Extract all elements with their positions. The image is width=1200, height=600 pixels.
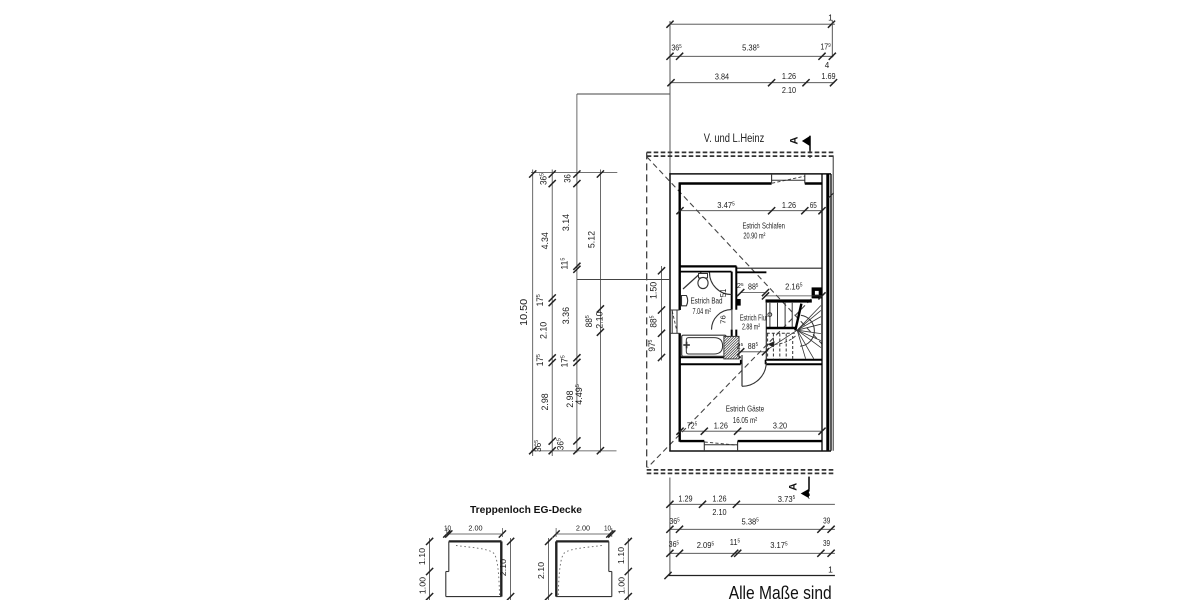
svg-text:10.50: 10.50: [519, 299, 530, 326]
svg-text:3.735: 3.735: [778, 495, 796, 504]
svg-text:1.10: 1.10: [617, 546, 626, 564]
svg-text:1.26: 1.26: [782, 72, 797, 81]
svg-text:5.12: 5.12: [587, 231, 597, 248]
svg-text:V. und L.Heinz: V. und L.Heinz: [704, 131, 765, 145]
svg-text:10: 10: [444, 524, 451, 533]
svg-text:10: 10: [604, 524, 611, 533]
svg-text:16.05 m²: 16.05 m²: [733, 415, 758, 425]
svg-text:115: 115: [559, 258, 569, 270]
svg-text:1.26: 1.26: [714, 421, 729, 430]
svg-text:4.34: 4.34: [540, 232, 550, 249]
svg-text:4: 4: [825, 61, 830, 70]
svg-text:975: 975: [647, 340, 657, 352]
svg-text:76: 76: [719, 315, 728, 324]
svg-text:1.10: 1.10: [418, 547, 427, 565]
svg-text:1.00: 1.00: [419, 576, 428, 594]
svg-text:20.90 m²: 20.90 m²: [743, 231, 765, 241]
svg-text:175: 175: [535, 354, 545, 366]
svg-text:115: 115: [730, 538, 741, 547]
svg-text:7.04 m²: 7.04 m²: [693, 306, 712, 316]
svg-text:365: 365: [539, 173, 549, 185]
svg-text:Treppenloch EG-Decke: Treppenloch EG-Decke: [470, 505, 582, 516]
svg-text:3.36: 3.36: [561, 307, 571, 324]
svg-text:25: 25: [737, 281, 744, 290]
svg-text:Estrich Gäste: Estrich Gäste: [726, 404, 765, 414]
svg-text:Estrich Bad: Estrich Bad: [691, 296, 723, 306]
svg-text:2.10: 2.10: [537, 561, 546, 579]
svg-text:2.98: 2.98: [540, 393, 550, 410]
svg-text:365: 365: [669, 540, 679, 549]
svg-text:Estrich Schlafen: Estrich Schlafen: [742, 221, 785, 231]
svg-text:5.385: 5.385: [742, 44, 760, 53]
svg-text:4.495: 4.495: [574, 384, 584, 405]
svg-text:1.00: 1.00: [617, 576, 626, 594]
svg-text:885: 885: [649, 316, 659, 328]
svg-text:2.00: 2.00: [576, 524, 590, 533]
svg-text:885: 885: [748, 283, 758, 292]
svg-text:2.00: 2.00: [468, 524, 482, 533]
svg-text:5.385: 5.385: [742, 517, 760, 526]
svg-text:365: 365: [671, 44, 681, 53]
svg-text:2.10: 2.10: [712, 508, 727, 517]
svg-text:A: A: [788, 483, 800, 491]
svg-text:365: 365: [669, 517, 679, 526]
svg-text:179: 179: [820, 43, 830, 52]
svg-text:36: 36: [563, 174, 573, 183]
svg-text:65: 65: [810, 201, 817, 210]
svg-text:3.20: 3.20: [773, 421, 788, 430]
svg-text:885: 885: [748, 342, 758, 351]
svg-text:2.10: 2.10: [594, 312, 604, 329]
svg-text:1.69: 1.69: [821, 72, 836, 81]
svg-text:2.10: 2.10: [499, 558, 508, 576]
svg-text:39: 39: [823, 539, 830, 548]
svg-text:175: 175: [559, 355, 569, 367]
svg-text:1.26: 1.26: [712, 494, 727, 503]
svg-text:2.165: 2.165: [785, 282, 803, 291]
svg-text:1.26: 1.26: [782, 201, 797, 210]
svg-text:2.10: 2.10: [782, 86, 797, 95]
svg-text:3.175: 3.175: [770, 541, 788, 550]
svg-text:3.14: 3.14: [561, 214, 571, 231]
svg-text:3.84: 3.84: [715, 72, 730, 81]
svg-text:1.50: 1.50: [649, 282, 659, 299]
svg-text:2.10: 2.10: [539, 322, 549, 339]
svg-text:1: 1: [828, 565, 833, 575]
svg-text:A: A: [789, 136, 801, 144]
svg-text:2.095: 2.095: [697, 541, 715, 550]
svg-text:885: 885: [584, 315, 594, 327]
svg-text:Alle Maße sind: Alle Maße sind: [729, 582, 832, 600]
svg-text:725: 725: [687, 421, 697, 430]
svg-text:3.475: 3.475: [717, 201, 735, 210]
svg-text:175: 175: [535, 294, 545, 306]
svg-text:2.88 m²: 2.88 m²: [742, 321, 760, 331]
svg-text:365: 365: [533, 440, 543, 452]
svg-text:1.29: 1.29: [678, 494, 693, 503]
svg-text:39: 39: [823, 516, 830, 525]
svg-text:365: 365: [555, 438, 565, 450]
